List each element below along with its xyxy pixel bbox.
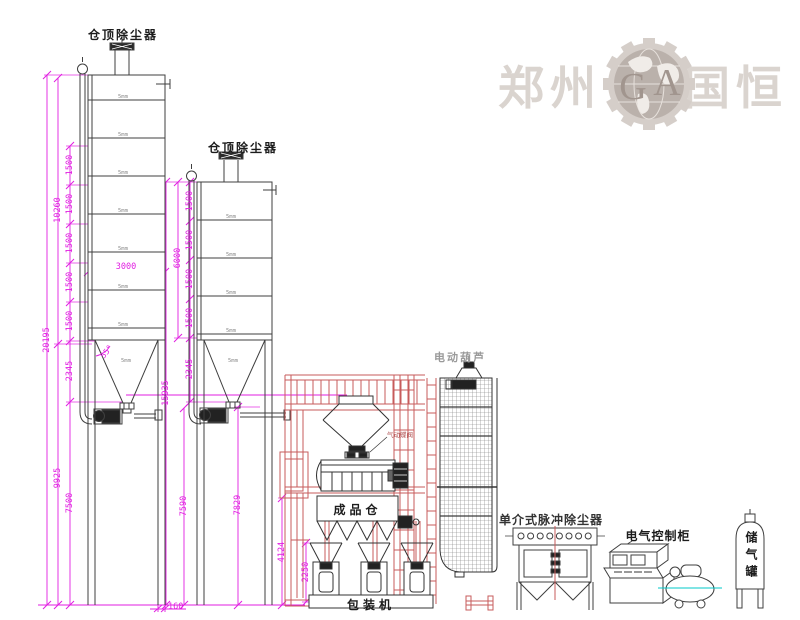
mixer xyxy=(317,460,409,491)
compressor-wheel xyxy=(675,600,683,608)
electric-hoist-label: 电动葫芦 xyxy=(425,349,495,365)
bin-motor-icon xyxy=(398,516,412,528)
svg-text:5mm: 5mm xyxy=(228,358,239,364)
tank-leg xyxy=(737,589,742,608)
dim-silo1-hopper: 2345 xyxy=(65,346,75,396)
dim-packer-height: 2250 xyxy=(301,547,311,597)
silo-2-discharge-feeder xyxy=(200,408,291,423)
compressor-wheel xyxy=(697,600,705,608)
silo-2-top-label: 仓顶除尘器 xyxy=(198,139,288,156)
console-keyboard xyxy=(604,568,663,578)
svg-text:5mm: 5mm xyxy=(121,358,132,364)
svg-text:5mm: 5mm xyxy=(118,170,129,176)
compressor-head xyxy=(681,565,701,577)
silo-1-neck xyxy=(115,50,129,75)
company-watermark: 郑州 国恒 G xyxy=(498,38,788,130)
console-screen-left xyxy=(613,555,627,565)
svg-text:5mm: 5mm xyxy=(226,328,237,334)
pulse-dust-collector xyxy=(505,526,605,610)
dim-silo1-lower: 9925 xyxy=(53,453,63,503)
svg-text:5mm: 5mm xyxy=(118,246,129,252)
frame-top-rail xyxy=(285,375,425,380)
dim-silo1-diameter: 3000 xyxy=(101,262,151,272)
dim-silo2-discharge: 7829 xyxy=(233,480,243,530)
silo-1-top-label: 仓顶除尘器 xyxy=(78,26,168,43)
watermark-city-text: 郑州 xyxy=(498,62,602,114)
tank-leg xyxy=(758,589,763,608)
packing-machine-label: 包装机 xyxy=(309,596,433,613)
dim-silo1-upper: 10260 xyxy=(53,185,63,235)
dim-tower-platform: 4124 xyxy=(277,527,287,577)
compressor-tank xyxy=(666,576,714,602)
dim-silo2-overall: 15935 xyxy=(161,368,171,418)
silo-1 xyxy=(78,37,171,605)
gear-globe-logo-icon: G A xyxy=(603,38,695,130)
svg-text:5mm: 5mm xyxy=(118,208,129,214)
svg-text:5mm: 5mm xyxy=(226,252,237,258)
console-screen-right xyxy=(631,555,645,565)
svg-text:5mm: 5mm xyxy=(118,132,129,138)
weigh-hopper xyxy=(323,396,389,458)
mixer-motor-icon xyxy=(393,463,408,488)
dim-silo2-hopper: 2345 xyxy=(185,344,195,394)
dim-silo2-body: 6000 xyxy=(173,233,183,283)
silo-2-neck xyxy=(224,160,238,182)
silo-2-body xyxy=(197,182,272,340)
dim-silo1-legs: 7500 xyxy=(65,478,75,528)
silo-2-legs xyxy=(197,340,272,605)
svg-text:5mm: 5mm xyxy=(226,290,237,296)
control-cabinet-label: 电气控制柜 xyxy=(618,527,698,544)
monogram-a-letter: A xyxy=(653,62,681,104)
svg-text:5mm: 5mm xyxy=(226,214,237,220)
product-bin-label: 成品仓 xyxy=(317,501,398,518)
dim-silo1-leg-width: 160 xyxy=(168,602,194,612)
dim-silo1-overall: 20195 xyxy=(42,315,52,365)
svg-text:5mm: 5mm xyxy=(118,284,129,290)
process-flow-diagram: 郑州 国恒 G xyxy=(0,0,800,620)
hoist-trolley-icon xyxy=(452,380,476,389)
silo-1-legs xyxy=(88,340,165,605)
svg-text:5mm: 5mm xyxy=(118,94,129,100)
air-compressor xyxy=(658,565,722,608)
air-tank-label: 储气罐 xyxy=(743,531,760,582)
monogram-g-letter: G xyxy=(619,66,646,108)
dim-silo1-seg5: 1500 xyxy=(65,296,75,346)
dim-silo2-seg4: 1500 xyxy=(185,293,195,343)
silo-1-discharge-feeder xyxy=(94,409,163,424)
dim-silo2-legs: 7590 xyxy=(179,481,189,531)
svg-text:5mm: 5mm xyxy=(118,322,129,328)
bucket-elevator-mesh-tower xyxy=(437,356,497,577)
pulse-dust-collector-label: 单介式脉冲除尘器 xyxy=(492,511,610,528)
silo-2-hopper xyxy=(204,340,265,402)
control-console xyxy=(604,541,674,603)
watermark-name-text: 国恒 xyxy=(684,62,788,114)
weigh-hopper-valve-label: 气动蝶阀 xyxy=(387,429,413,439)
